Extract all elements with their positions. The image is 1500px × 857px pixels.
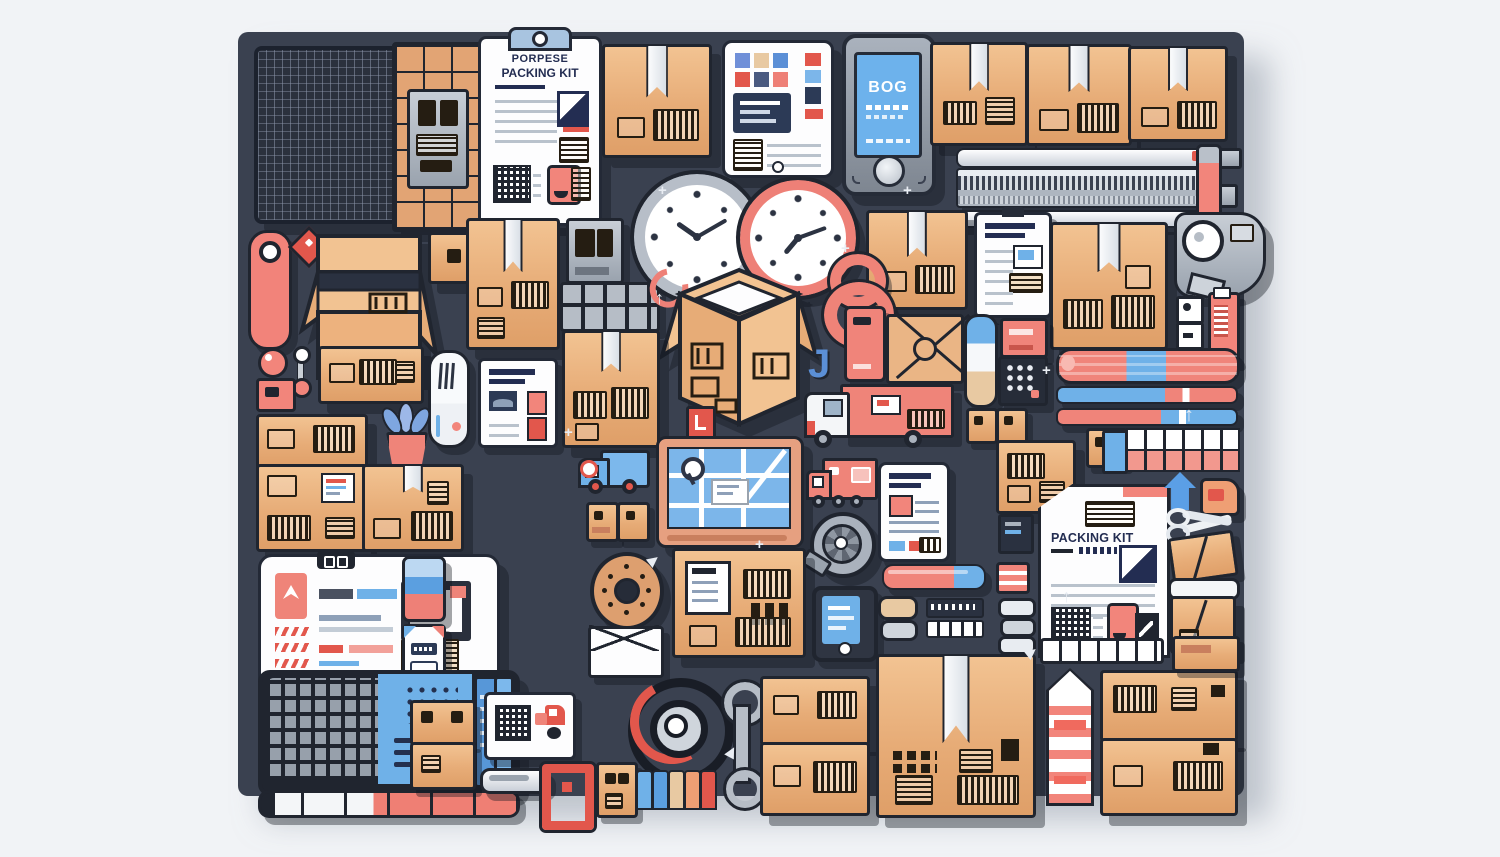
decor-shape [326, 492, 340, 495]
key-tiles [560, 282, 660, 332]
sparkle-icon: + [1042, 362, 1051, 379]
decor-shape [605, 773, 616, 784]
decor-shape [259, 241, 281, 263]
tape-tube-2 [1056, 386, 1238, 404]
pink-ball [258, 348, 288, 378]
decor-shape [326, 479, 346, 483]
decor-shape [1005, 530, 1021, 534]
decor-shape [819, 435, 827, 443]
decor-shape [420, 160, 452, 172]
decor-shape [805, 87, 821, 104]
decor-shape [410, 700, 476, 746]
decor-shape [652, 770, 669, 810]
decor-shape [559, 137, 589, 163]
decor-shape [942, 654, 969, 743]
decor-shape [1039, 109, 1069, 131]
decor-shape [1004, 416, 1013, 425]
decor-shape [816, 499, 821, 504]
decor-shape [850, 495, 863, 508]
carton-stack-2 [760, 676, 868, 812]
decor-shape [532, 31, 548, 47]
box-tape [646, 44, 668, 98]
small-phone-screen [822, 596, 860, 644]
map-screen [667, 447, 791, 529]
decor-shape [337, 556, 348, 568]
illustration-page: { "scene": { "description": "Flat vector… [0, 0, 1500, 857]
cable-coil [628, 678, 716, 766]
decor-shape [1176, 296, 1204, 324]
parcel-box-1 [602, 44, 712, 158]
decor-shape [511, 281, 549, 309]
map-tablet [656, 436, 804, 548]
decor-shape [1113, 765, 1143, 787]
decor-shape [740, 119, 776, 123]
decor-shape [283, 585, 299, 599]
decor-shape [1141, 107, 1169, 127]
blue-toy-truck [578, 448, 646, 494]
decor-shape [919, 537, 941, 553]
decor-shape [319, 661, 359, 666]
ruler-strip-top [956, 148, 1212, 168]
decor-shape [717, 485, 739, 488]
red-toy-truck [806, 458, 872, 510]
decor-shape [359, 359, 397, 385]
decor-shape [985, 223, 1035, 229]
decor-shape [421, 755, 441, 773]
decor-shape [957, 775, 1019, 805]
decor-shape [489, 369, 535, 375]
decor-shape [893, 751, 937, 760]
packing-note-card [478, 358, 558, 448]
parcel-box-9 [562, 330, 660, 448]
decor-shape [878, 596, 918, 620]
decor-shape [1059, 355, 1237, 375]
tape-strip-handle [480, 768, 550, 794]
decor-shape [926, 598, 984, 618]
pill-capsule [964, 314, 998, 408]
decor-shape [575, 423, 599, 441]
decor-shape [888, 570, 968, 574]
decor-shape [828, 626, 846, 630]
decor-shape [1061, 355, 1075, 371]
decor-shape [1007, 453, 1045, 479]
decor-shape [909, 435, 917, 443]
decor-shape [267, 515, 311, 541]
checklist-clip [317, 551, 355, 569]
parcel-box-14 [672, 548, 806, 658]
clipboard-title-line1: PORPESE [481, 53, 599, 65]
decor-shape [265, 354, 272, 361]
sparkle-icon: + [755, 536, 764, 553]
decor-shape [834, 536, 848, 550]
decor-shape [726, 770, 764, 808]
highlighter-tube [882, 564, 986, 590]
decor-shape [667, 535, 787, 541]
decor-shape [373, 518, 401, 539]
tile-grid [1126, 428, 1236, 468]
decor-shape [547, 727, 561, 739]
decor-shape [605, 793, 623, 809]
decor-shape [805, 70, 821, 83]
decor-shape [866, 115, 904, 119]
decor-shape [418, 100, 436, 126]
decor-shape [404, 626, 416, 638]
bog-phone: BOG [842, 34, 936, 196]
decor-shape [1126, 449, 1240, 472]
spool-wheel [810, 512, 874, 574]
decor-shape [1181, 645, 1211, 653]
decor-shape [450, 363, 455, 389]
decor-shape [823, 399, 843, 417]
decor-shape [1176, 322, 1204, 350]
mosaic-tablet [722, 40, 834, 178]
decor-shape [395, 361, 415, 383]
decor-shape [575, 229, 595, 257]
decor-shape [1203, 743, 1219, 755]
truck-wheel-rear [904, 430, 922, 448]
decor-shape [1009, 329, 1033, 335]
decor-shape [614, 578, 640, 604]
salmon-handle [248, 230, 292, 350]
decor-shape [542, 764, 594, 830]
decor-shape [489, 417, 519, 437]
decor-shape [324, 556, 335, 568]
decor-shape [1177, 101, 1217, 129]
parcel-box-12 [362, 464, 464, 552]
clipboard-clip [508, 27, 572, 51]
decor-shape [624, 564, 629, 569]
decor-shape [958, 176, 1210, 190]
decor-shape [805, 109, 823, 119]
decor-shape [689, 625, 717, 647]
decor-shape [836, 499, 841, 504]
decor-shape [969, 42, 989, 91]
desk-clutter [878, 596, 982, 640]
decor-shape [411, 643, 437, 655]
decor-shape [735, 617, 791, 647]
document-tablet [878, 462, 950, 562]
decor-shape [1208, 489, 1224, 501]
decor-shape [1007, 485, 1031, 503]
decor-shape [275, 659, 309, 668]
decor-shape [580, 460, 598, 478]
decor-shape [985, 289, 1013, 305]
blue-j-hook: J [808, 342, 840, 388]
decor-shape [693, 233, 701, 241]
keyboard-keys [266, 678, 378, 780]
decor-shape [828, 606, 850, 610]
decor-shape [626, 511, 635, 520]
decor-shape [1213, 287, 1231, 299]
decor-shape [907, 210, 927, 257]
decor-shape [974, 416, 983, 425]
phone-screen: BOG [854, 52, 922, 158]
decor-shape [588, 479, 603, 494]
decor-shape [1168, 46, 1188, 91]
decor-shape [563, 303, 657, 307]
tape-tube-1 [1056, 348, 1240, 384]
decor-shape [1214, 305, 1228, 337]
decor-shape [1077, 103, 1119, 133]
decor-shape [1001, 739, 1019, 761]
marker-pen [1196, 144, 1222, 220]
decor-shape [889, 495, 913, 517]
decor-shape [554, 191, 568, 198]
blue-tile [1102, 430, 1128, 474]
decor-shape [1005, 363, 1037, 393]
decor-shape [966, 408, 998, 444]
carton-stack-1 [410, 700, 470, 784]
decor-shape [760, 742, 870, 816]
decor-shape [329, 363, 355, 383]
decor-shape [1093, 613, 1103, 639]
red-bracket [542, 764, 578, 814]
decor-shape [754, 53, 769, 68]
decor-shape [889, 519, 939, 533]
phone-screen-title: BOG [857, 79, 919, 97]
decor-shape [832, 495, 845, 508]
decor-shape [1111, 295, 1155, 329]
decor-shape [527, 391, 547, 415]
decor-shape [889, 473, 931, 479]
truck-container [840, 384, 954, 438]
decor-shape [880, 620, 918, 641]
decor-shape [592, 483, 599, 490]
parcel-box-8 [318, 346, 424, 404]
envelope [588, 626, 664, 678]
decor-shape [854, 499, 859, 504]
decor-shape [589, 625, 659, 651]
decor-shape [1054, 776, 1086, 784]
parcel-box-3 [1026, 44, 1132, 146]
decor-shape [267, 429, 295, 449]
decor-shape [319, 645, 343, 653]
decor-shape [573, 391, 607, 419]
decor-shape [325, 517, 355, 539]
red-bookmark [275, 573, 307, 619]
pink-module [1000, 318, 1048, 358]
decor-shape [477, 317, 505, 339]
decor-shape [1100, 738, 1238, 816]
decor-shape [812, 476, 824, 488]
decor-shape [527, 417, 547, 441]
decor-shape [450, 586, 466, 598]
decor-shape [871, 395, 901, 415]
decor-shape [1018, 250, 1034, 260]
decor-shape [403, 464, 423, 493]
decor-shape [489, 775, 529, 781]
decor-shape [1173, 761, 1223, 791]
potted-plant [374, 402, 434, 466]
decor-shape [617, 502, 650, 542]
decor-shape [1230, 224, 1254, 242]
decor-shape [1183, 333, 1193, 338]
truck-wheel-front [814, 430, 832, 448]
map-label [711, 479, 749, 505]
decor-shape [851, 467, 871, 483]
tablet-card [733, 93, 791, 133]
decor-shape [562, 782, 572, 792]
decor-shape [275, 627, 309, 636]
phone-home-button [873, 155, 905, 187]
decor-shape [313, 425, 355, 453]
decor-shape [926, 620, 984, 638]
clutter-card [998, 514, 1034, 554]
decor-shape [504, 218, 523, 272]
clipboard-title-line2: PACKING KIT [481, 66, 599, 80]
sparkle-icon: + [564, 424, 573, 441]
decor-shape [427, 481, 449, 505]
decor-shape [895, 775, 933, 805]
decor-shape [326, 486, 346, 489]
decor-shape [1125, 265, 1151, 289]
decor-shape [931, 604, 975, 610]
box-doc-label [685, 561, 731, 615]
decor-shape [773, 72, 788, 87]
decor-shape [985, 97, 1015, 125]
packing-kit-document: PACKING KIT [1038, 484, 1170, 658]
decor-shape [985, 233, 1025, 238]
decor-shape [636, 770, 653, 810]
decor-shape [915, 495, 939, 513]
parcel-box-7 [1050, 222, 1168, 350]
packing-kit-clipboard: PORPESE PACKING KIT [478, 36, 602, 226]
decor-shape [319, 615, 381, 621]
decor-shape [754, 72, 769, 87]
sparkle-icon: + [841, 240, 850, 257]
decor-shape [549, 709, 557, 716]
box-label-card [321, 473, 355, 503]
decor-shape [773, 53, 788, 68]
decor-shape [1031, 390, 1039, 398]
qr-shipping-card [484, 692, 576, 760]
decor-shape [618, 773, 629, 784]
key-strip [1040, 638, 1164, 664]
decor-shape [813, 761, 857, 793]
decor-shape [1009, 273, 1043, 293]
clipboard-qr [493, 165, 531, 203]
decor-shape [586, 502, 619, 542]
decor-shape [440, 100, 458, 126]
delivery-truck [804, 384, 948, 448]
decor-shape [575, 267, 609, 275]
map-pin [681, 457, 705, 481]
decor-shape [1171, 687, 1197, 711]
decor-shape [838, 642, 852, 656]
note-photo [489, 391, 517, 411]
decor-shape [909, 541, 919, 551]
decor-shape [1054, 720, 1086, 730]
pink-carton [844, 306, 886, 382]
decor-shape [1123, 487, 1167, 497]
decor-shape [740, 101, 780, 105]
measuring-ruler [258, 790, 520, 818]
decor-shape [998, 598, 1036, 618]
sparkle-icon: + [903, 182, 912, 199]
decor-shape [414, 647, 432, 651]
decor-shape [915, 265, 955, 294]
mini-box-3 [596, 762, 638, 818]
decor-shape [1069, 44, 1090, 92]
decor-shape [943, 101, 977, 125]
decor-shape [1079, 547, 1117, 554]
decor-shape [852, 176, 860, 184]
thermometer-capsule [428, 350, 470, 448]
packing-doc-title: PACKING KIT [1051, 531, 1151, 545]
calculator-keypad [998, 356, 1048, 406]
plant-pot [386, 432, 428, 468]
decor-shape [1097, 222, 1120, 272]
color-tabs [636, 770, 718, 808]
pink-tray [256, 378, 296, 412]
decor-shape [1085, 501, 1135, 527]
decor-shape [1100, 670, 1238, 742]
decor-shape [535, 713, 547, 725]
decor-shape [416, 134, 458, 156]
decor-shape [805, 53, 821, 66]
decor-shape [293, 346, 311, 364]
decor-shape [594, 511, 603, 520]
zipper-strip [956, 168, 1212, 208]
tape-tube-3 [1056, 408, 1238, 426]
decor-shape [611, 387, 649, 419]
wall-fixture [407, 89, 469, 189]
decor-shape [773, 695, 799, 715]
decor-shape [411, 511, 453, 541]
decor-shape [265, 387, 279, 397]
decor-shape [1194, 232, 1204, 242]
tablet-stamp [733, 139, 763, 171]
decor-shape [684, 770, 701, 810]
decor-shape [1139, 621, 1153, 637]
decor-shape [735, 53, 750, 68]
decor-shape [357, 589, 397, 599]
parcel-box-2 [930, 42, 1028, 146]
decor-shape [489, 379, 525, 384]
decor-shape [432, 626, 444, 638]
decor-shape [452, 422, 461, 431]
decor-shape [866, 105, 910, 110]
decor-shape [318, 236, 420, 272]
decor-shape [601, 330, 621, 372]
decor-shape [889, 483, 921, 488]
decor-shape [717, 492, 733, 495]
decor-shape [692, 568, 716, 574]
arrow-up-icon: ↑ [655, 288, 664, 309]
decor-shape [817, 691, 857, 719]
arrow-up-icon: ↑ [1062, 586, 1071, 607]
decor-shape [913, 337, 937, 361]
brick-panel [392, 42, 484, 232]
decor-shape [622, 479, 637, 494]
decor-shape [695, 415, 706, 430]
decor-shape [907, 409, 945, 429]
mini-box-4 [1172, 636, 1240, 672]
decor-shape [477, 287, 503, 307]
open-box-3d [658, 258, 820, 428]
decor-shape [563, 127, 589, 132]
decor-shape [1063, 299, 1103, 329]
decor-shape [319, 627, 393, 632]
decor-shape [812, 495, 825, 508]
mini-cartons-2 [586, 502, 644, 540]
label-printer [566, 218, 624, 284]
decor-shape [959, 749, 993, 773]
decor-shape [1126, 428, 1240, 451]
clipboard-stamp [557, 91, 589, 127]
parcel-box-11 [256, 464, 368, 552]
decor-shape [996, 408, 1028, 444]
